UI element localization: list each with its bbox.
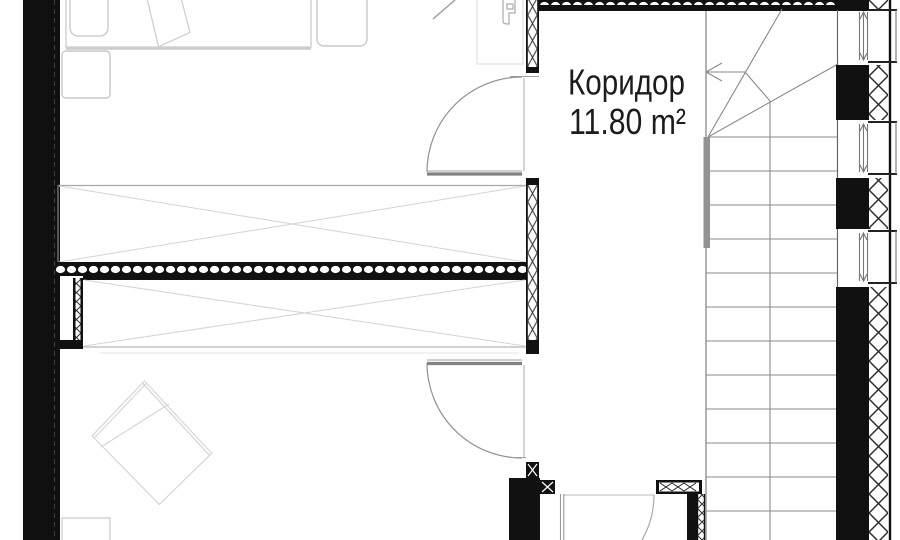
svg-text:Коридор: Коридор: [568, 62, 685, 103]
svg-text:11.80 m²: 11.80 m²: [569, 101, 686, 142]
